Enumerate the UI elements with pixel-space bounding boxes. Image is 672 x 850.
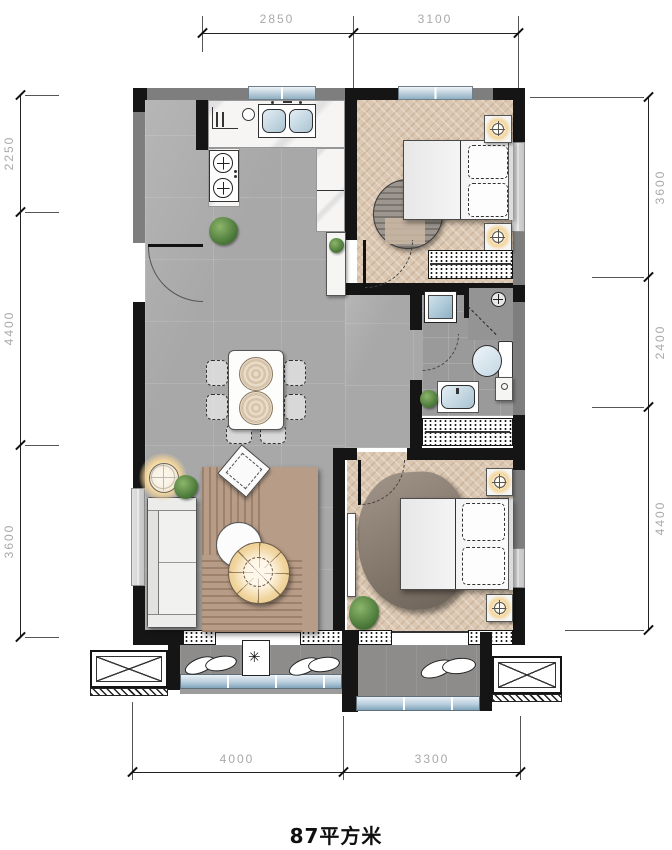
ac-platform-right-brace	[498, 662, 556, 688]
sofa-armrest-bottom	[148, 614, 196, 627]
wall-right-1	[513, 88, 525, 142]
bedroom1-lamp-top-ring	[492, 123, 505, 136]
dim-ext-left-1	[25, 95, 59, 96]
bedroom1-pillow-bottom	[468, 183, 508, 217]
ac-platform-left-brace	[96, 656, 162, 682]
bedroom2-tv-console	[347, 513, 356, 597]
washing-machine-glass	[428, 295, 453, 319]
wall-right-5	[513, 415, 525, 470]
wall-top-2	[147, 88, 248, 100]
balcony-door-sill-right	[392, 631, 468, 633]
wall-right-3	[513, 285, 525, 302]
dining-plate-top	[239, 357, 273, 391]
bedroom1-wardrobe-rod	[430, 263, 511, 265]
wall-right-4	[513, 302, 525, 415]
wall-bedroom1-left	[345, 100, 357, 240]
ac-platform-right-louver	[492, 694, 562, 702]
shower-head-icon	[491, 292, 506, 307]
hall-closet-rod	[425, 431, 510, 433]
bedroom1-lamp-bottom	[485, 224, 511, 250]
dim-label-top-2: 3100	[405, 12, 465, 26]
dim-label-left-2: 4400	[2, 303, 16, 353]
ac-platform-left-louver	[90, 688, 168, 696]
balcony-left-sill	[180, 689, 342, 694]
vanity-faucet-dot	[456, 388, 459, 394]
dim-label-bottom-1: 4000	[207, 752, 267, 766]
dim-label-right-1: 3600	[653, 162, 667, 212]
bedroom2-pillow-bottom	[462, 547, 505, 585]
dim-ext-right-1	[530, 97, 644, 98]
dining-chair	[284, 394, 306, 420]
bedroom2-pillow-top	[462, 503, 505, 541]
sink-basin-left	[262, 109, 286, 133]
balcony-right-sidewall	[480, 632, 492, 711]
stove-knob-1	[234, 170, 237, 173]
kitchen-cabinet-divider	[317, 190, 344, 191]
wall-bathroom-left-2	[410, 380, 422, 448]
wall-left-2	[133, 112, 145, 243]
bedroom1-lamp-bottom-ring	[492, 231, 505, 244]
dining-chair	[284, 360, 306, 386]
dim-ext-right-4	[565, 630, 644, 631]
dining-plate-bottom	[239, 391, 273, 425]
wall-bedroom2-top-2	[407, 448, 513, 460]
living-window-left	[131, 488, 145, 586]
bedroom2-window-right	[511, 548, 525, 588]
wall-right-6	[513, 470, 525, 548]
wall-kitchen-pier	[196, 100, 208, 150]
sink-faucet-dot-2	[299, 101, 302, 104]
planter-bedroom2-left	[358, 630, 392, 645]
kitchen-window	[248, 86, 316, 100]
balcony-right-window	[356, 696, 480, 711]
planter-living-left	[183, 630, 216, 645]
stove-burner-top	[213, 153, 233, 173]
dim-ext-left-4	[25, 637, 59, 638]
pot-icon	[242, 108, 255, 121]
wall-top-5	[473, 88, 493, 100]
ac-platform-right	[492, 656, 562, 694]
area-caption: 87平方米	[0, 820, 672, 849]
bedroom2-lamp-top	[487, 469, 512, 495]
dining-chair	[206, 394, 228, 420]
dim-line-top	[202, 33, 518, 34]
bedroom1-window-right	[511, 142, 525, 232]
bedroom1-lamp-top	[485, 116, 511, 142]
shower-wall-stub	[464, 288, 469, 318]
balcony-planter-star-plant: ✳	[248, 650, 261, 665]
sink-basin-right	[289, 109, 313, 133]
dim-label-left-3: 3600	[2, 516, 16, 566]
bedroom1-window	[398, 86, 473, 100]
dim-ext-left-2	[25, 212, 59, 213]
balcony-left-window	[180, 674, 342, 689]
dim-line-bottom	[132, 772, 520, 773]
bedroom2-lamp-bottom	[487, 595, 512, 621]
dish-rack-bar-2	[222, 112, 224, 127]
bedroom2-headboard	[508, 498, 513, 590]
dim-ext-left-3	[25, 445, 59, 446]
stove-burner-bottom	[213, 178, 233, 198]
dim-ext-top-right	[518, 16, 519, 88]
toilet-bowl	[472, 345, 502, 377]
dim-ext-top-mid	[353, 16, 354, 88]
wall-top-4	[345, 88, 398, 100]
dish-rack-bar-1	[216, 112, 218, 127]
balcony-left-sidewall	[168, 632, 180, 690]
sink-faucet	[283, 101, 292, 103]
stove-knob-2	[234, 175, 237, 178]
bathroom-cabinet-knob	[501, 383, 508, 390]
dim-label-right-3: 4400	[653, 493, 667, 543]
ac-platform-left	[90, 650, 168, 688]
wall-bottom-2	[513, 630, 525, 645]
wall-top-3	[316, 88, 345, 100]
floor-plan-canvas: ✳ 2850 3100 2250 4400 3600 3600 2400 440…	[0, 0, 672, 850]
bedroom1-headboard	[508, 140, 513, 220]
bedroom1-pillow-top	[468, 145, 508, 179]
wall-living-bedroom2	[333, 460, 345, 632]
dining-chair	[206, 360, 228, 386]
bedroom2-bed-fold	[455, 499, 456, 589]
wall-bathroom-left-1	[410, 295, 422, 330]
bedroom2-lamp-top-ring	[494, 476, 506, 489]
dim-label-left-1: 2250	[2, 128, 16, 178]
bedroom2-lamp-bottom-ring	[494, 602, 506, 615]
dim-line-left	[20, 95, 21, 637]
dim-ext-right-2	[592, 277, 644, 278]
sofa-seat-divider	[159, 562, 196, 563]
wall-left-3	[133, 302, 145, 488]
dim-ext-right-3	[592, 407, 644, 408]
wall-bedroom2-top-1	[333, 448, 357, 460]
sink-faucet-dot-1	[271, 101, 274, 104]
wall-right-2	[513, 232, 525, 285]
dim-label-right-2: 2400	[653, 317, 667, 367]
bedroom1-bed-fold	[460, 141, 461, 219]
planter-living-right	[300, 630, 345, 645]
wall-left-1	[133, 88, 145, 112]
dim-label-top-1: 2850	[247, 12, 307, 26]
dim-line-right	[648, 97, 649, 630]
sofa-back-cushion	[148, 498, 159, 627]
dim-label-bottom-2: 3300	[402, 752, 462, 766]
coffee-table-inner-ring	[243, 557, 273, 587]
